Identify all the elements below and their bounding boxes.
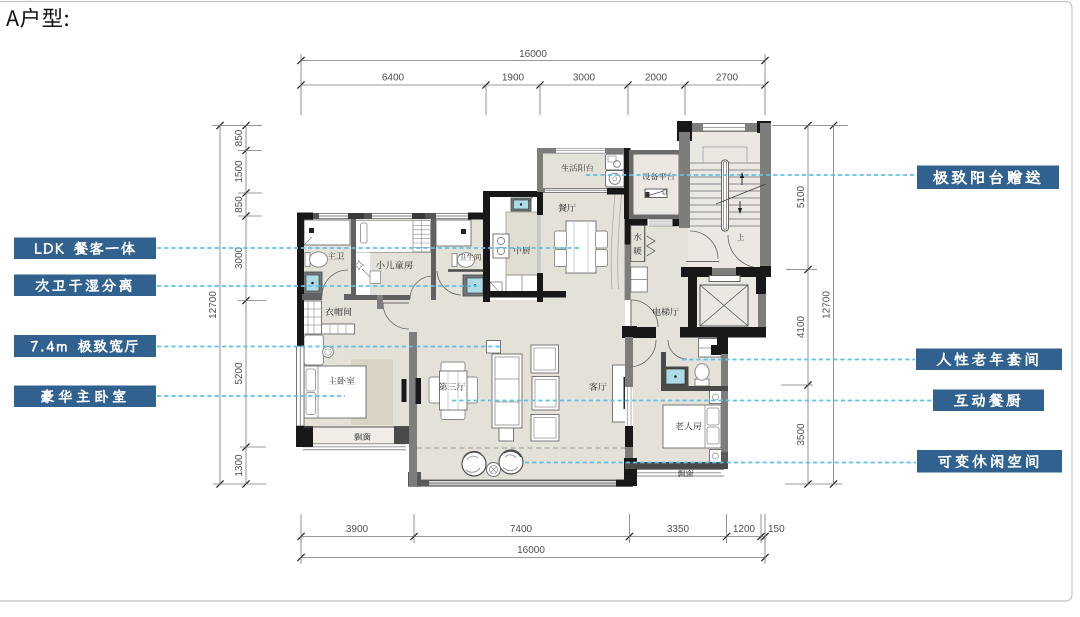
svg-text:2700: 2700 [716, 73, 739, 84]
svg-text:16000: 16000 [519, 49, 547, 60]
svg-text:5100: 5100 [796, 185, 807, 208]
svg-text:12700: 12700 [208, 291, 219, 319]
svg-text:850: 850 [234, 196, 245, 213]
svg-text:7400: 7400 [510, 524, 533, 535]
svg-text:1300: 1300 [234, 454, 245, 477]
svg-text:2000: 2000 [645, 73, 668, 84]
svg-text:850: 850 [234, 129, 245, 146]
svg-text:150: 150 [768, 524, 785, 535]
svg-text:3000: 3000 [573, 73, 596, 84]
svg-text:3350: 3350 [667, 524, 690, 535]
svg-text:3000: 3000 [234, 246, 245, 269]
svg-text:3500: 3500 [796, 423, 807, 446]
svg-text:3900: 3900 [346, 524, 369, 535]
svg-text:12700: 12700 [822, 291, 833, 319]
svg-text:16000: 16000 [517, 545, 545, 556]
svg-text:5200: 5200 [234, 362, 245, 385]
svg-text:1200: 1200 [733, 524, 756, 535]
svg-text:1500: 1500 [234, 160, 245, 183]
svg-text:4100: 4100 [796, 315, 807, 338]
svg-text:6400: 6400 [382, 73, 405, 84]
svg-text:1900: 1900 [502, 73, 525, 84]
